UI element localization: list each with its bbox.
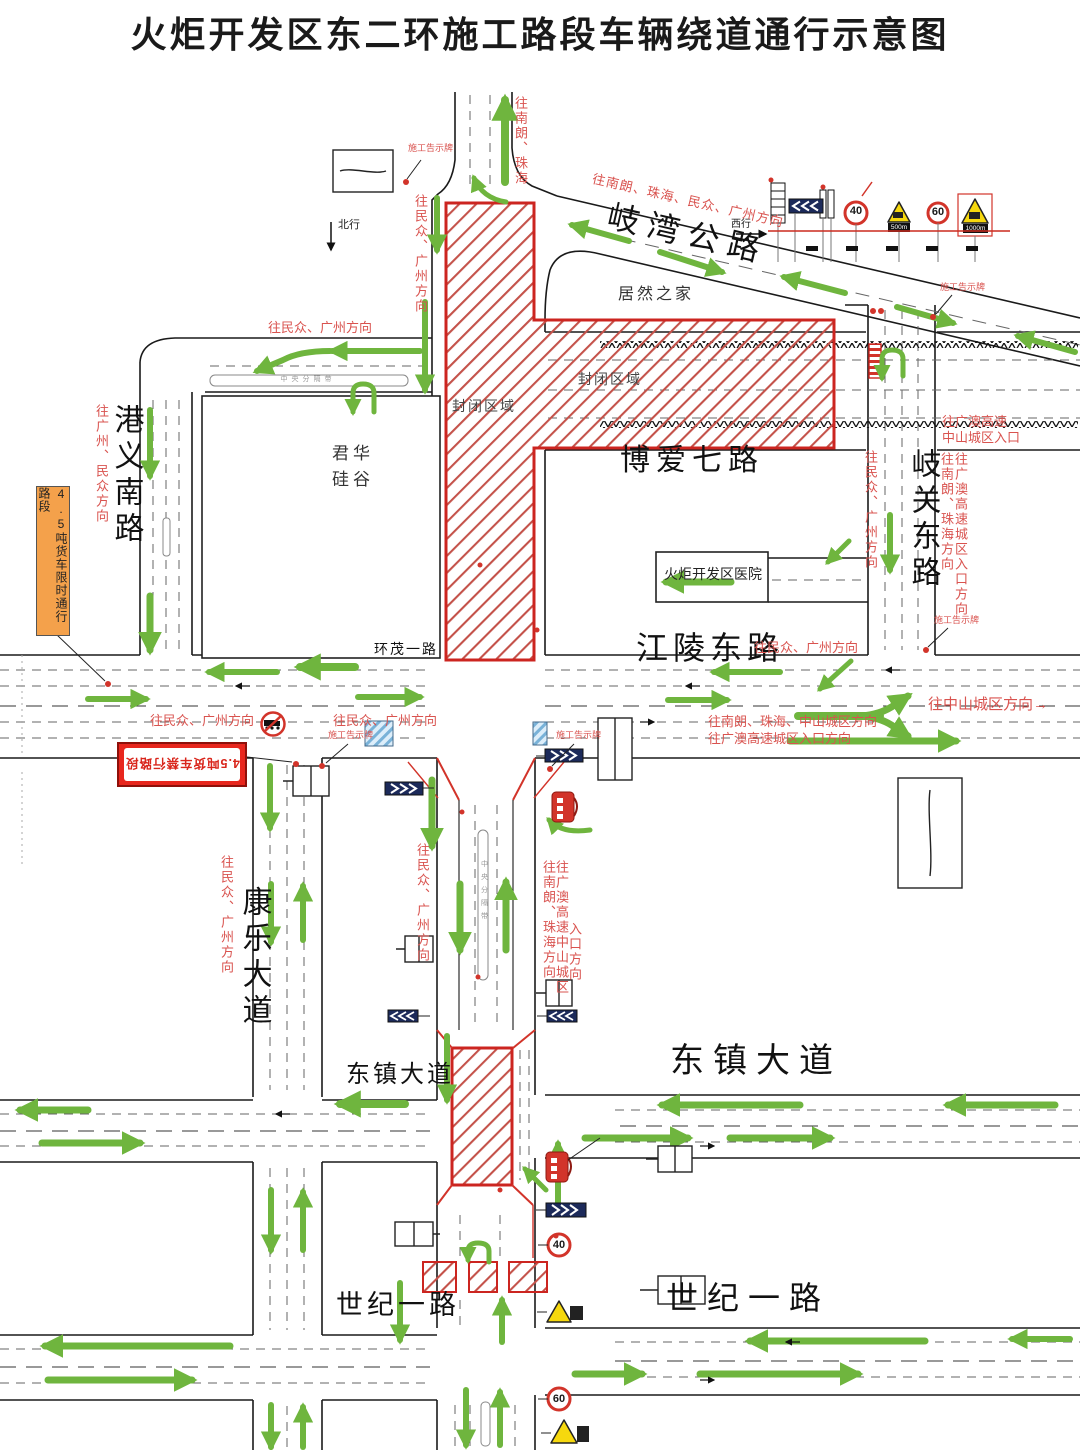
direction-label-kangle-w1: 往民众、广州方向 xyxy=(150,714,254,729)
direction-label-top-exit: 往南朗、珠海 xyxy=(512,96,527,186)
no-truck-sign-icon xyxy=(262,713,285,736)
road-label-dongzhen-left: 东镇大道 xyxy=(346,1062,454,1090)
road-label-boai: 博爱七路 xyxy=(620,444,764,479)
chevron-board-icon xyxy=(536,749,583,762)
notice-board-label: 施工告示牌 xyxy=(408,143,453,153)
road-label-shiji-left: 世纪一路 xyxy=(336,1290,460,1321)
truck-ban-sign: 4.5吨货车禁行路段 xyxy=(117,742,247,787)
truck-limit-sign: 4.5吨货车限时通行路段 xyxy=(36,486,70,636)
distance-1000-plate-text: 1000m xyxy=(963,225,988,232)
distance-500-plate-text: 500m xyxy=(888,224,910,231)
chevron-board-icon xyxy=(789,199,823,213)
truck-limit-sign-text: 4.5吨货车限时通行路段 xyxy=(36,487,70,635)
truck-ban-sign-text: 4.5吨货车禁行路段 xyxy=(125,755,240,774)
direction-label-east-exit-2: 往广澳高速城区入口方向 xyxy=(708,732,851,747)
direction-label-qiguan-r1: 往南朗、珠海方向 xyxy=(938,452,953,572)
place-label-hospital: 火炬开发区医院 xyxy=(658,568,768,584)
direction-label-center-r3: 入口方向 xyxy=(566,922,581,982)
direction-label-qiguan-r2: 往广澳高速城区入口方向 xyxy=(952,452,967,617)
water-barrier-icon xyxy=(533,722,547,745)
page-title: 火炬开发区东二环施工路段车辆绕道通行示意图 xyxy=(0,14,1080,55)
roadwork-triangle-icon xyxy=(537,1301,583,1322)
construction-truck-icon xyxy=(546,1138,600,1182)
place-label-junhua-1: 君华 xyxy=(332,444,374,464)
chevron-board-icon xyxy=(388,1010,430,1022)
road-label-shiji-right: 世纪一路 xyxy=(666,1280,830,1317)
direction-label-gaoao-1: 往广澳高速 xyxy=(942,415,1007,430)
road-label-qiguan: 岐关东路 xyxy=(905,448,940,592)
speed-60-legend-text: 60 xyxy=(928,206,948,219)
construction-zones xyxy=(408,203,881,1292)
place-label-juranzhijia: 居然之家 xyxy=(618,286,694,304)
speed-60-sign-text: 60 xyxy=(549,1393,569,1406)
direction-label-gangyi: 往广州、民众方向 xyxy=(93,404,108,524)
north-bound-label: 北行 xyxy=(338,219,360,232)
detour-diagram-page: 火炬开发区东二环施工路段车辆绕道通行示意图 往南朗、珠海 往民众、广州方向 施工… xyxy=(0,0,1080,1450)
road-label-kangle: 康乐大道 xyxy=(236,886,271,1030)
direction-label-zhongshan: 往中山城区方向→ xyxy=(928,696,1048,713)
direction-label-kangle-vert: 往民众、广州方向 xyxy=(218,855,233,975)
sign-legend-row xyxy=(768,178,1010,263)
notice-board-label: 施工告示牌 xyxy=(328,730,373,740)
construction-truck-icon xyxy=(552,792,577,822)
direction-label-west-street: 往民众、广州方向 xyxy=(268,321,372,336)
speed-40-sign-text: 40 xyxy=(549,1239,569,1252)
place-label-junhua-2: 硅谷 xyxy=(332,470,374,490)
direction-label-top-left: 往民众、广州方向 xyxy=(412,194,427,314)
truck-ban-sign-panel: 4.5吨货车禁行路段 xyxy=(124,748,240,781)
roadwork-triangle-icon xyxy=(541,1420,589,1443)
direction-label-east-exit-1: 往南朗、珠海、中山城区方向 xyxy=(708,715,877,730)
notice-board-label: 施工告示牌 xyxy=(934,615,979,625)
road-label-dongzhen-right: 东镇大道 xyxy=(670,1042,842,1081)
median-label: 中央分隔带 xyxy=(480,860,488,925)
direction-label-qiguan-left: 往民众、广州方向 xyxy=(862,450,877,570)
closed-zone-label-a: 封闭区域 xyxy=(452,398,516,414)
chevron-board-icon xyxy=(537,1010,577,1022)
notice-board-label: 施工告示牌 xyxy=(556,730,601,740)
speed-40-legend-text: 40 xyxy=(846,205,866,218)
direction-label-kangle-w2: 往民众、广州方向 xyxy=(333,714,437,729)
road-label-gangyi: 港义南路 xyxy=(108,404,143,548)
chevron-board-icon xyxy=(536,1203,586,1217)
direction-label-center-left: 往民众、广州方向 xyxy=(414,843,429,963)
road-label-huanmao: 环茂一路 xyxy=(374,643,438,659)
direction-label-gaoao-2: 中山城区入口 xyxy=(942,431,1020,446)
closed-zone-label-b: 封闭区域 xyxy=(578,371,642,387)
median-label: 中央分隔带 xyxy=(258,376,358,384)
direction-label-jiangling: 往民众、广州方向 xyxy=(754,641,858,656)
notice-board-label: 施工告示牌 xyxy=(940,282,985,292)
